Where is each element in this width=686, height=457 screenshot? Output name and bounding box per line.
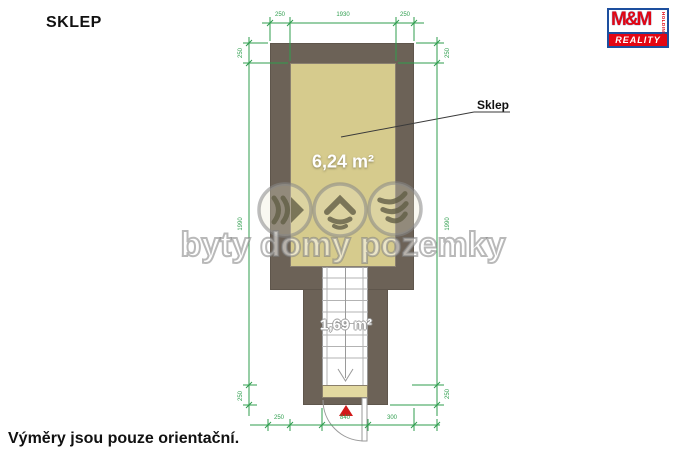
dim-bottom-left: 250 (274, 415, 284, 421)
stair-landing (322, 385, 368, 398)
page-title: SKLEP (46, 14, 102, 32)
dim-left-top: 250 (238, 48, 244, 58)
dim-top-middle: 1930 (336, 12, 349, 18)
room-area-label: 6,24 m² (312, 152, 374, 173)
room-callout-label: Sklep (477, 98, 509, 112)
stairs-area-label: 1,69 m² (320, 317, 372, 334)
dim-right-top: 250 (445, 48, 451, 58)
dim-right-bottom: 250 (445, 389, 451, 399)
logo-reality-text: REALITY (607, 34, 669, 48)
mm-reality-logo: M&M HOLDING REALITY (607, 8, 669, 48)
disclaimer-note: Výměry jsou pouze orientační. (8, 430, 239, 448)
logo-mm-text: M&M (611, 9, 650, 31)
dim-bottom-right: 300 (387, 415, 397, 421)
dim-left-bottom: 250 (238, 391, 244, 401)
dim-bottom-middle: 840 (340, 415, 350, 421)
watermark-text: byty domy pozemky (170, 226, 516, 265)
floorplan-page: SKLEP M&M HOLDING REALITY (0, 0, 686, 457)
dim-top-left: 250 (275, 12, 285, 18)
logo-holding-text: HOLDING (661, 12, 666, 36)
dim-top-right: 250 (400, 12, 410, 18)
logo-top-box: M&M HOLDING (607, 8, 669, 34)
